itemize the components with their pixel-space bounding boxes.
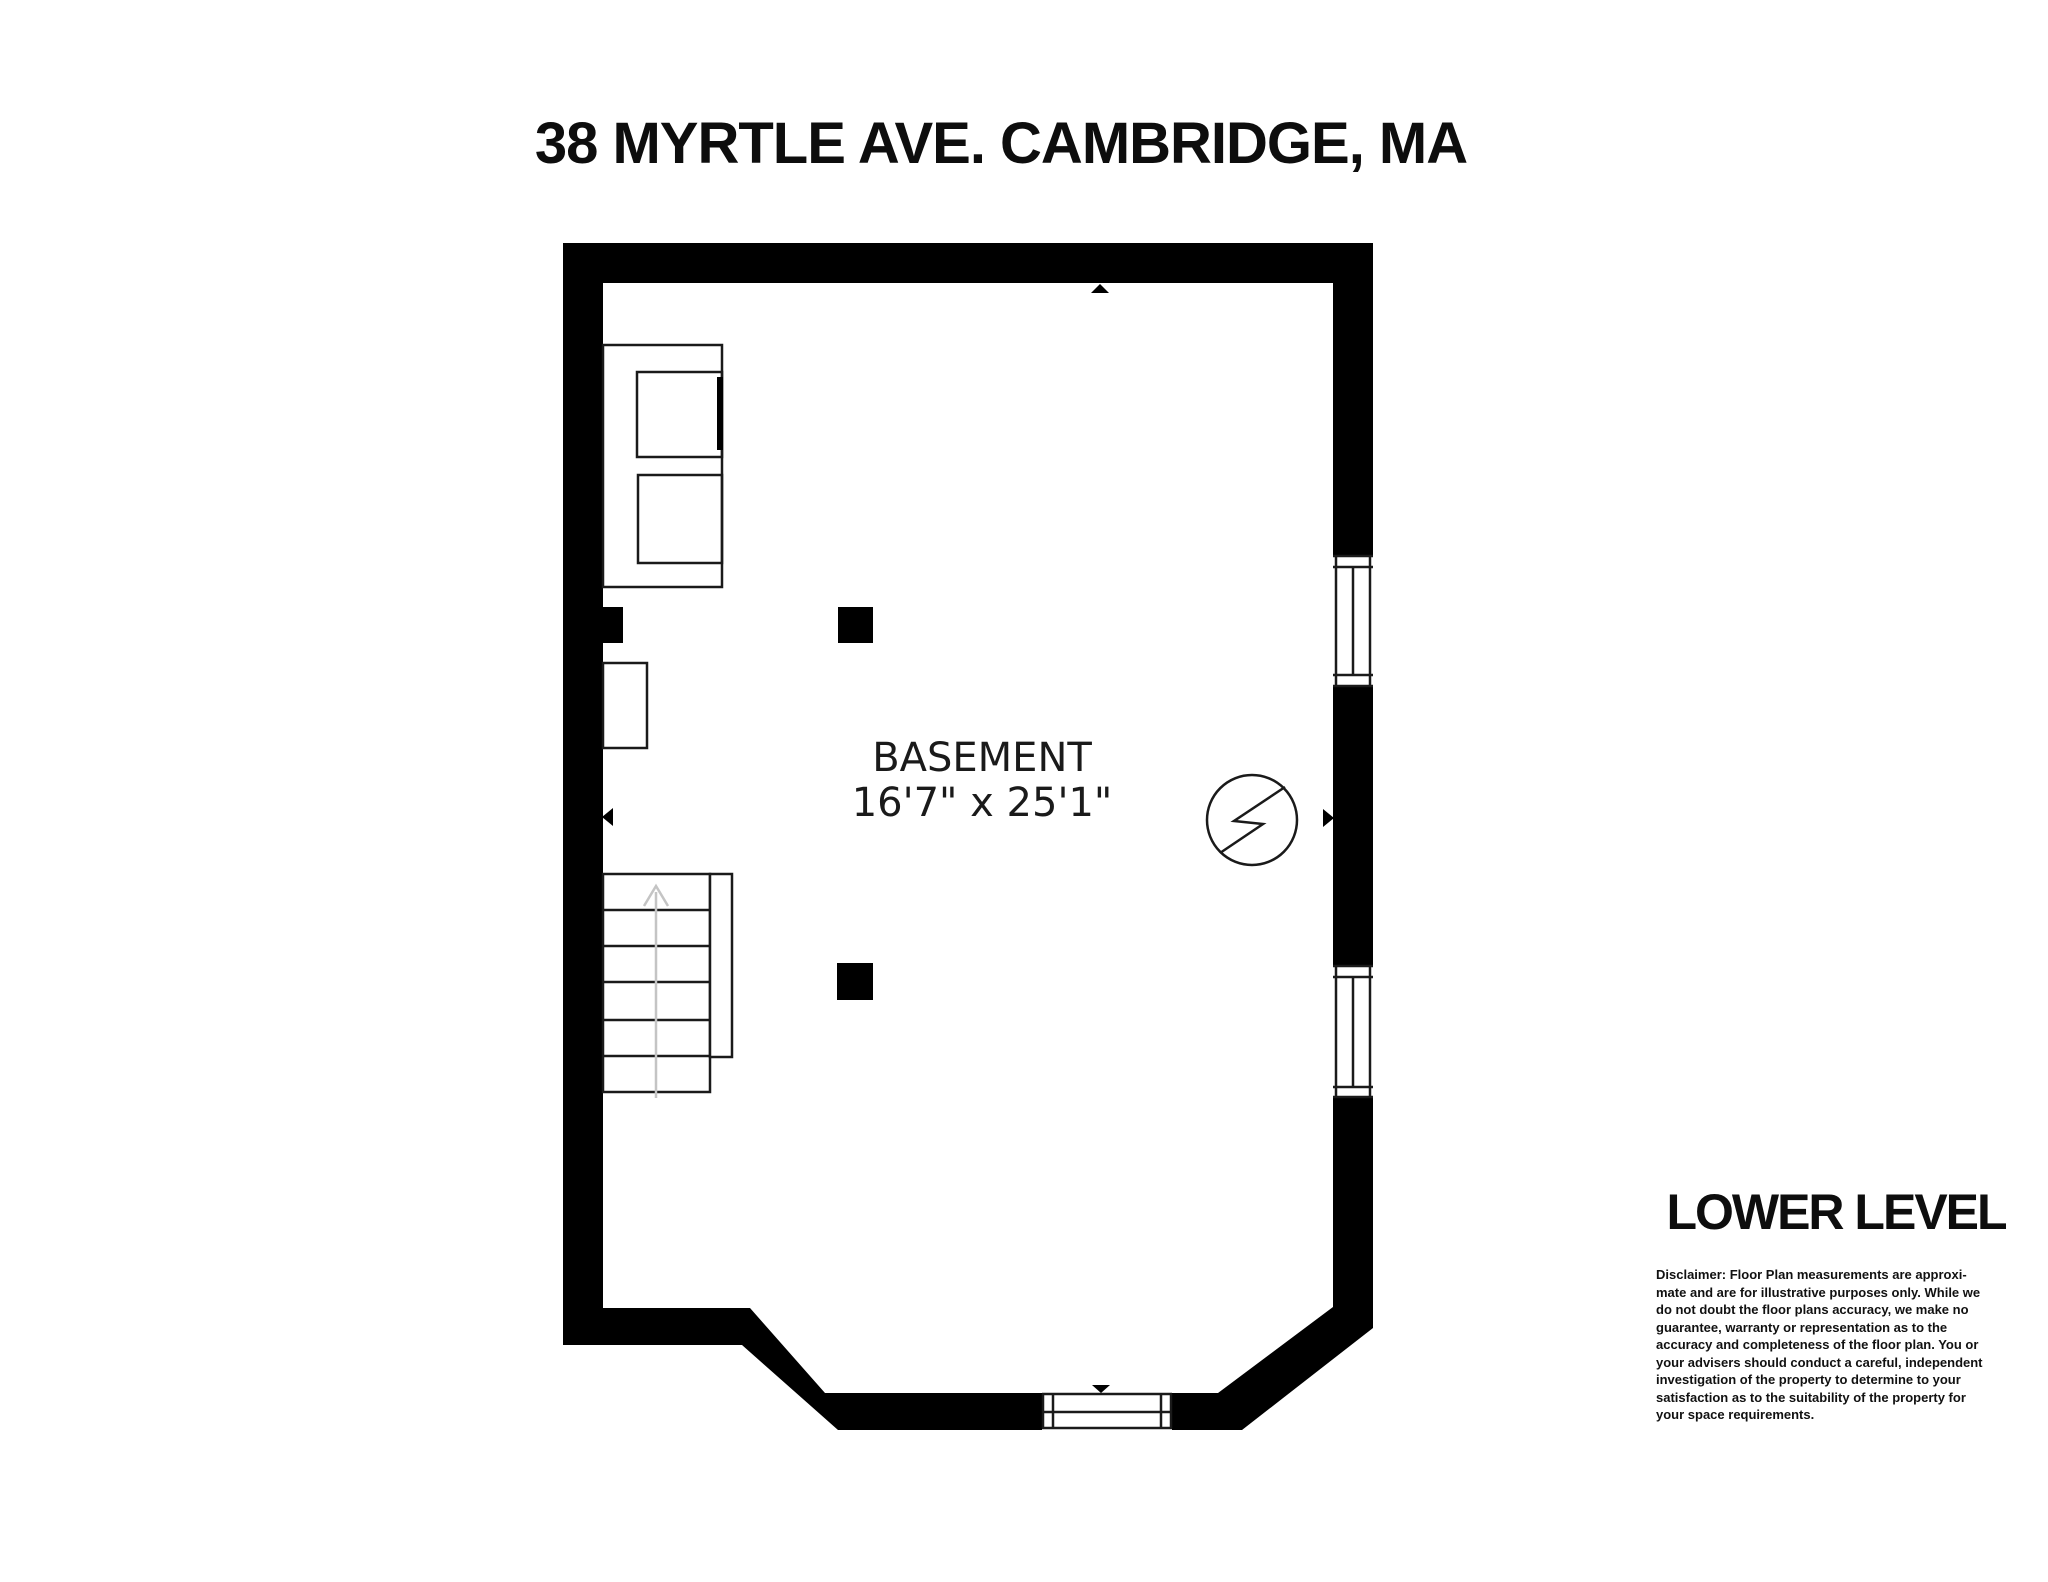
floor-plan-page: 38 MYRTLE AVE. CAMBRIDGE, MA BASEMENT 16… (0, 0, 2048, 1582)
level-label: LOWER LEVEL (1666, 1183, 2005, 1241)
water-heater (603, 663, 647, 748)
address-title: 38 MYRTLE AVE. CAMBRIDGE, MA (535, 110, 1467, 177)
room-label: BASEMENT 16'7" x 25'1" (852, 736, 1113, 826)
stair-rail (710, 874, 732, 1057)
structural-post-lower (837, 963, 873, 1000)
window-right-lower (1333, 965, 1373, 1098)
electrical-panel-icon (1207, 775, 1297, 865)
disclaimer-text: Disclaimer: Floor Plan measurements are … (1656, 1266, 2046, 1424)
window-right-upper (1333, 555, 1373, 687)
wall-pilaster (603, 607, 623, 643)
washer-door-mark (717, 377, 723, 450)
window-bay-bottom (1042, 1392, 1172, 1430)
room-dimensions: 16'7" x 25'1" (852, 781, 1113, 826)
structural-post-upper (838, 607, 873, 643)
room-name: BASEMENT (852, 736, 1113, 781)
